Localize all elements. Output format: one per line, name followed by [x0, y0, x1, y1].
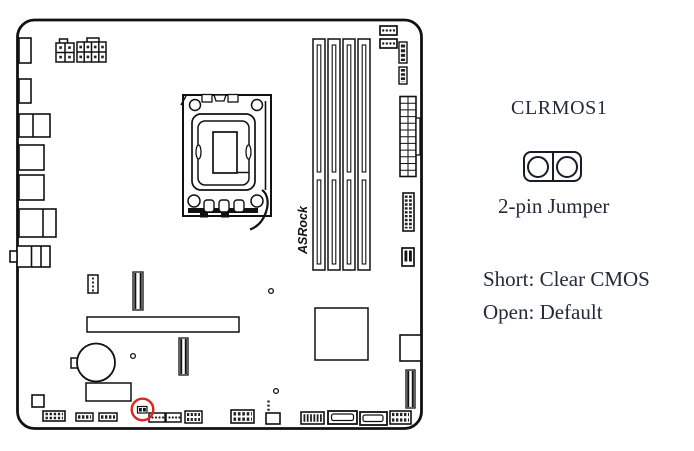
usb3-header-bottom	[301, 412, 324, 424]
sata-port	[328, 411, 357, 424]
two-pin-connector-right	[402, 248, 414, 266]
m2-mount-rect	[86, 383, 131, 401]
pin-circle-icon	[527, 156, 549, 178]
sata-port	[360, 412, 387, 425]
chipset	[315, 308, 368, 360]
edge-connector	[400, 335, 421, 361]
fan-header-mid	[88, 275, 98, 293]
instruction-short: Short: Clear CMOS	[483, 267, 650, 292]
panel-header	[390, 411, 411, 424]
chip-square	[32, 395, 44, 407]
usb3-header-right	[403, 193, 414, 231]
usb-header	[231, 410, 254, 423]
jumper-name-label: CLRMOS1	[511, 97, 607, 120]
connector-box	[266, 413, 280, 424]
cpu-socket	[181, 95, 271, 230]
usb-header	[185, 411, 202, 423]
header	[99, 413, 117, 421]
motherboard-diagram: ASRock	[0, 0, 460, 451]
instruction-open: Open: Default	[483, 300, 603, 325]
pin-circle-icon	[556, 156, 578, 178]
jumper-pin-2	[554, 153, 581, 180]
pcie-slot	[87, 317, 239, 332]
asrock-logo: ASRock	[296, 205, 310, 255]
header-with-pins	[166, 413, 181, 422]
audio-header	[43, 411, 65, 421]
jumper-pin-1	[525, 153, 554, 180]
dimm-slot	[358, 39, 370, 270]
clrmos1-jumper	[138, 407, 148, 414]
m2-slot	[406, 370, 415, 408]
dimm-slot	[328, 39, 340, 270]
dimm-slot	[343, 39, 355, 270]
manual-page: ASRock	[0, 0, 694, 451]
jumper-caption-label: 2-pin Jumper	[498, 194, 609, 219]
dimm-slot	[313, 39, 325, 270]
m2-slot	[179, 338, 188, 375]
cpu-power-connectors	[56, 38, 106, 62]
m2-slot	[133, 272, 143, 310]
header	[76, 413, 93, 421]
two-pin-jumper-icon	[523, 151, 582, 182]
